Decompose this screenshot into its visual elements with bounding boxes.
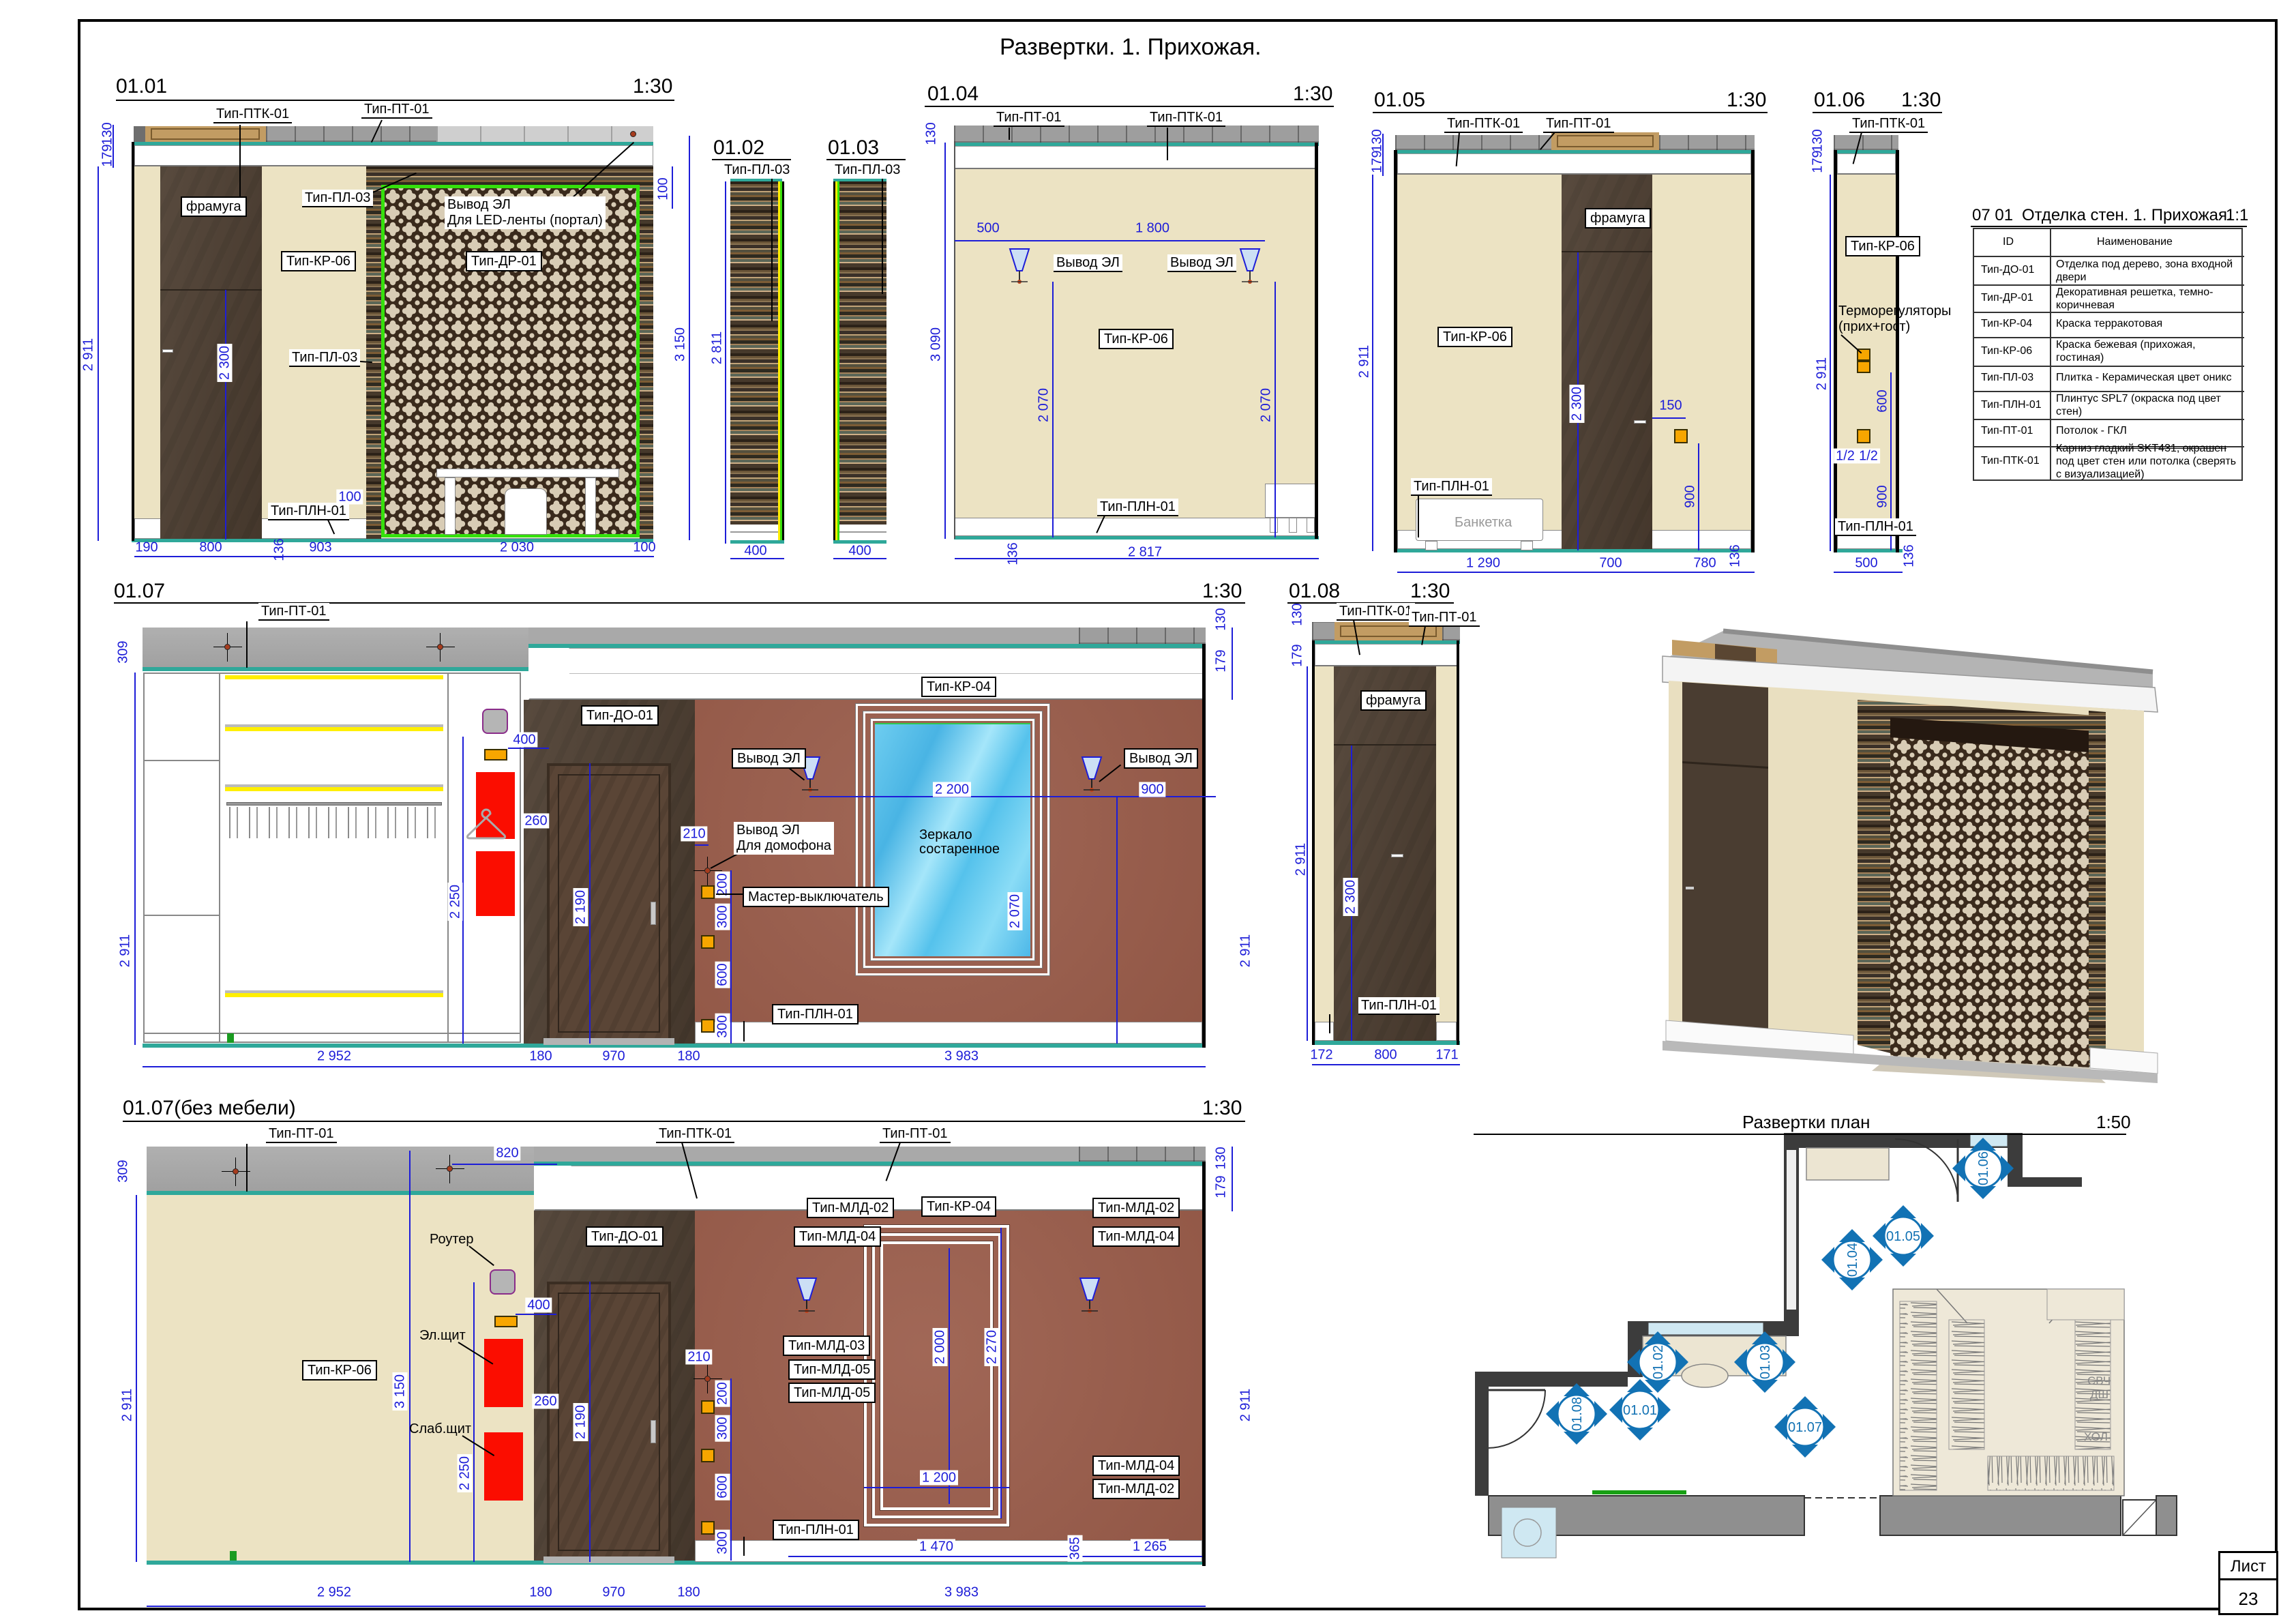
svg-text:01.03: 01.03 [1758,1345,1773,1379]
svg-text:ХОЛ: ХОЛ [2084,1430,2108,1443]
svg-text:01.01: 01.01 [1623,1403,1657,1418]
svg-text:01.07: 01.07 [1788,1420,1822,1435]
svg-text:01.08: 01.08 [1570,1397,1585,1431]
svg-text:01.02: 01.02 [1651,1345,1666,1379]
svg-text:01.04: 01.04 [1845,1243,1860,1277]
svg-text:ДШ: ДШ [2090,1388,2108,1401]
svg-text:01.06: 01.06 [1976,1151,1991,1185]
svg-text:СВЧ: СВЧ [2087,1374,2111,1387]
svg-text:01.05: 01.05 [1886,1229,1920,1244]
